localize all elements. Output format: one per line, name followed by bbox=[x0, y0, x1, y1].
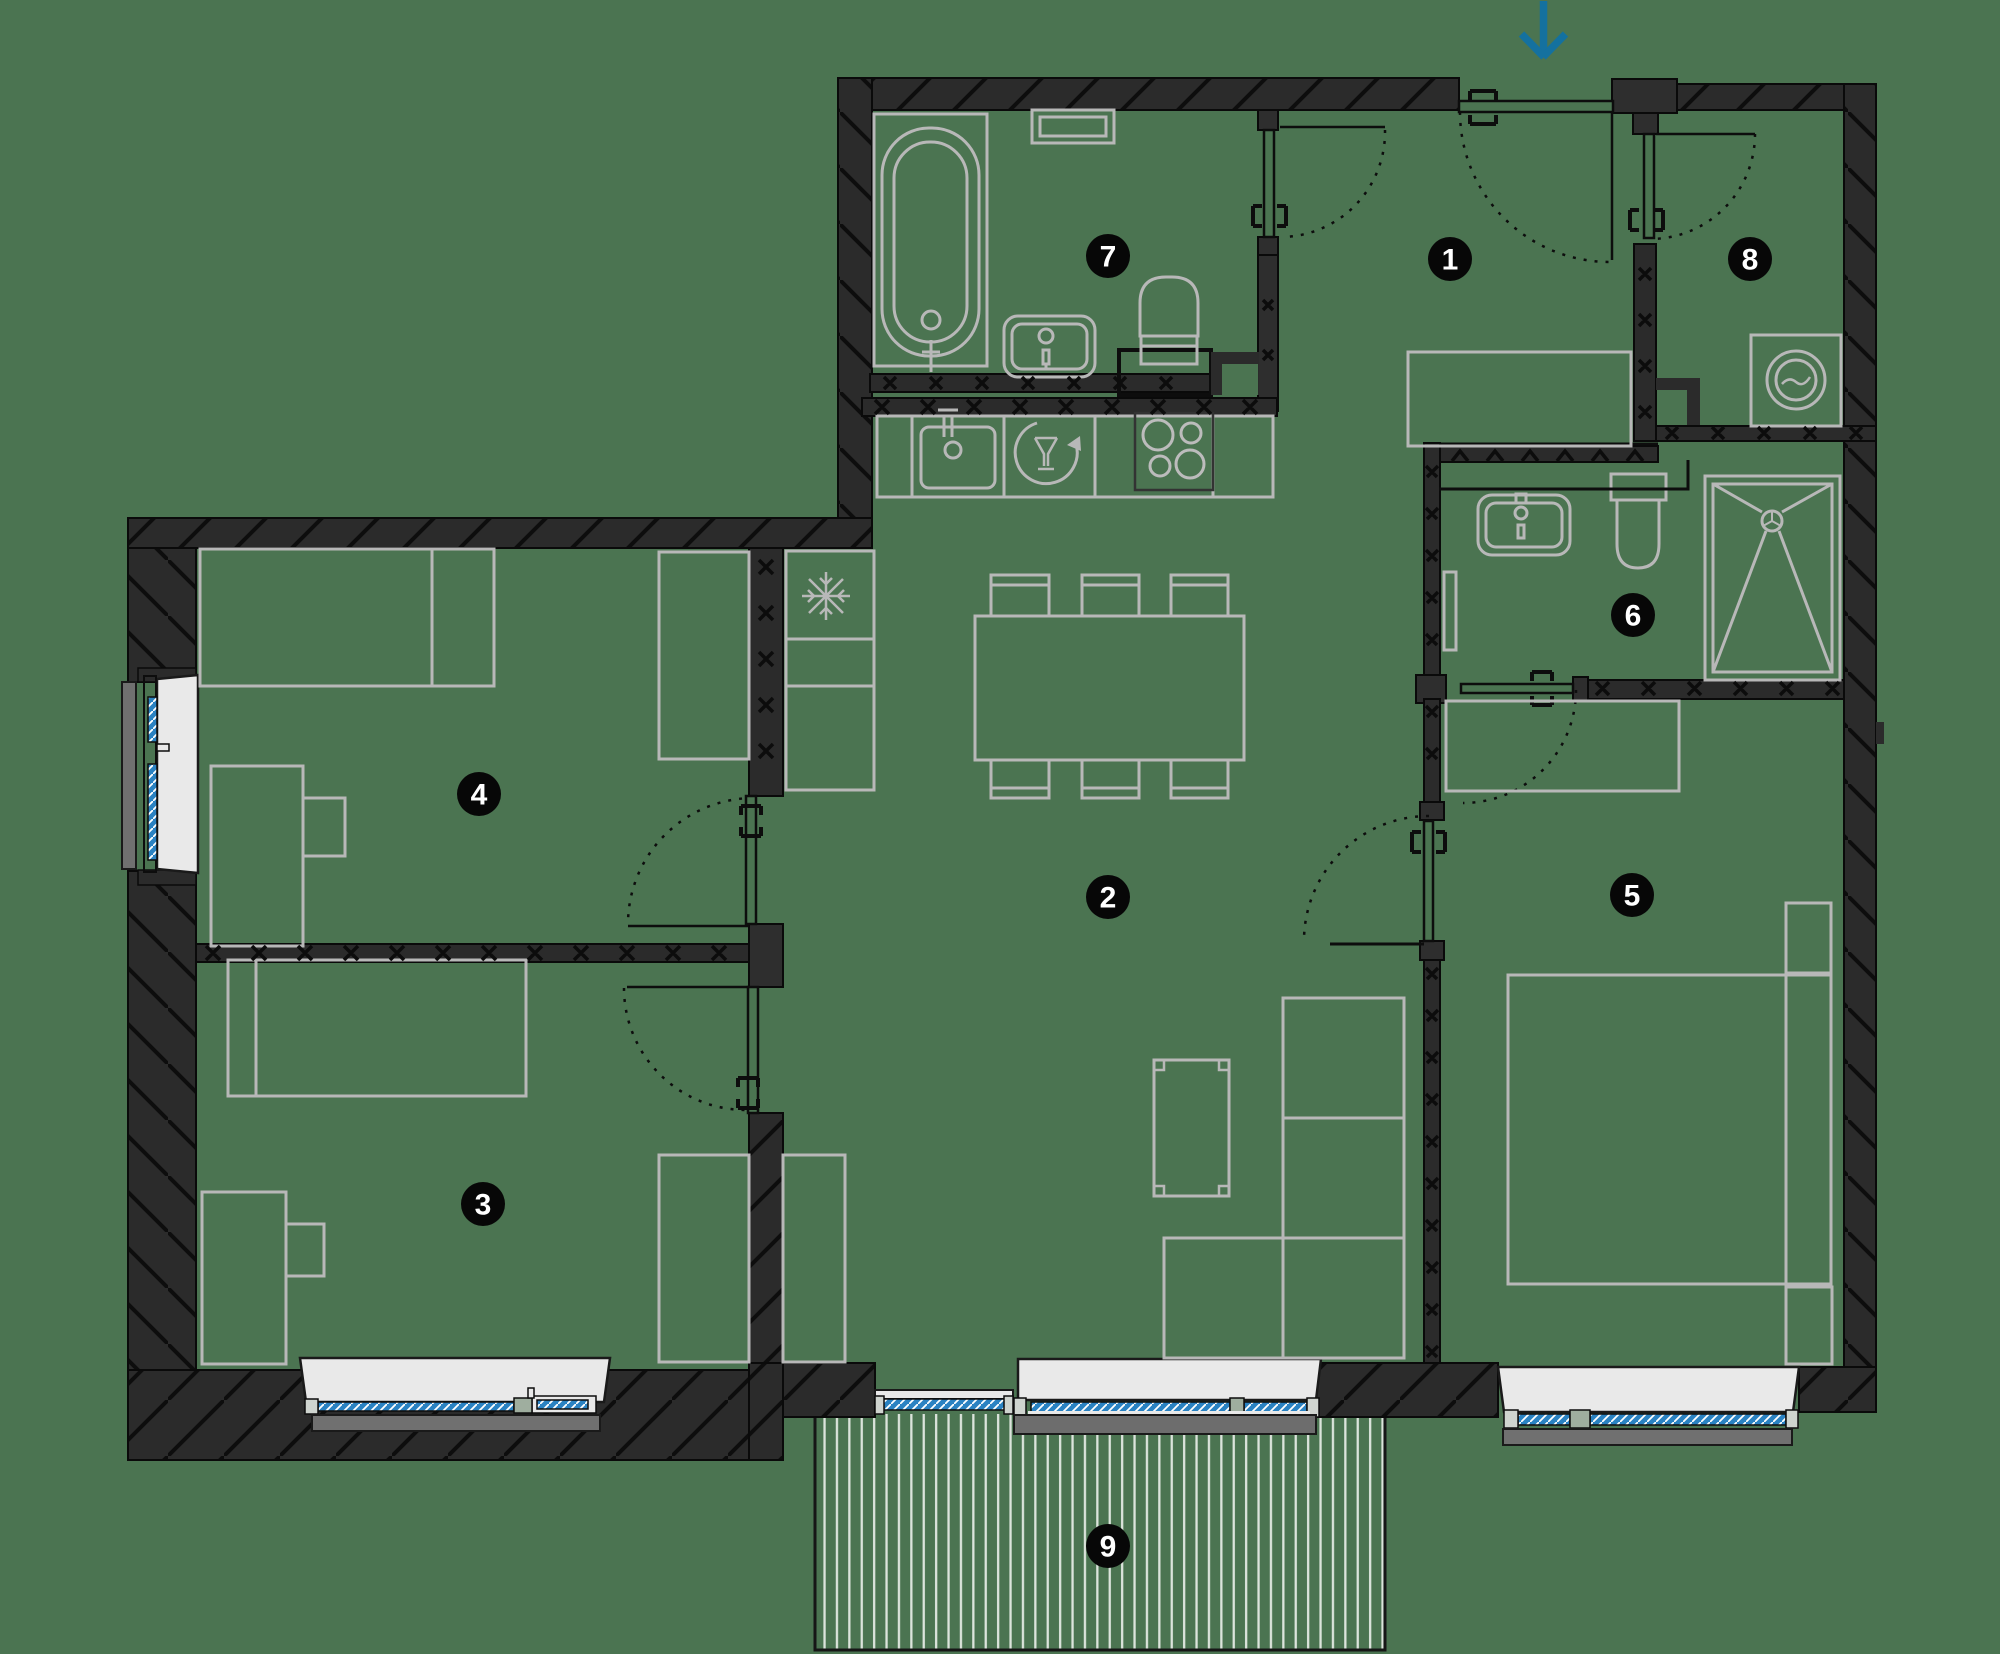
svg-text:5: 5 bbox=[1624, 880, 1641, 913]
svg-text:7: 7 bbox=[1100, 241, 1117, 274]
svg-text:1: 1 bbox=[1442, 244, 1459, 277]
svg-text:6: 6 bbox=[1625, 600, 1642, 633]
svg-text:8: 8 bbox=[1742, 244, 1759, 277]
svg-text:3: 3 bbox=[475, 1189, 492, 1222]
svg-text:9: 9 bbox=[1100, 1531, 1117, 1564]
svg-text:2: 2 bbox=[1100, 882, 1117, 915]
svg-text:4: 4 bbox=[471, 779, 488, 812]
